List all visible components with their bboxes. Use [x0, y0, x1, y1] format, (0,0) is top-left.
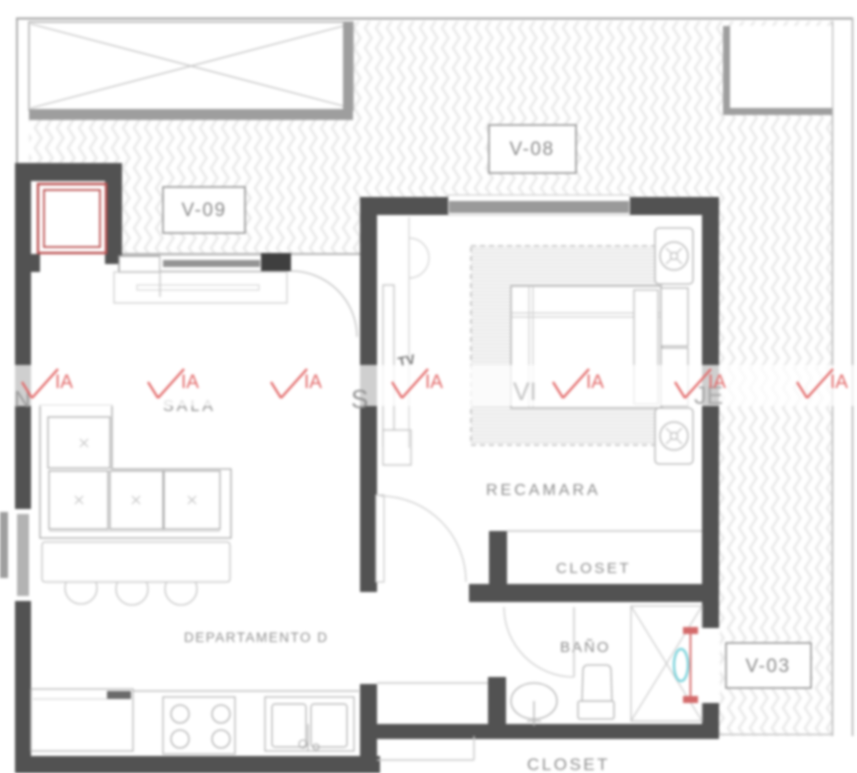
svg-text:V-09: V-09: [181, 200, 226, 221]
svg-text:VI: VI: [513, 378, 537, 406]
svg-text:IA: IA: [708, 372, 726, 393]
svg-text:V-08: V-08: [509, 139, 554, 160]
svg-text:DEPARTAMENTO D: DEPARTAMENTO D: [184, 630, 329, 645]
svg-text:IA: IA: [181, 372, 199, 393]
svg-text:CLOSET: CLOSET: [556, 560, 631, 577]
svg-text:IA: IA: [425, 372, 443, 393]
svg-text:BAÑO: BAÑO: [560, 639, 611, 656]
svg-text:RECAMARA: RECAMARA: [486, 482, 601, 499]
svg-text:IA: IA: [830, 372, 848, 393]
svg-text:IA: IA: [55, 372, 73, 393]
svg-text:S: S: [351, 384, 368, 414]
svg-text:IA: IA: [304, 372, 322, 393]
svg-text:IA: IA: [586, 372, 604, 393]
svg-text:V-03: V-03: [745, 656, 790, 677]
svg-text:CLOSET: CLOSET: [527, 755, 610, 773]
